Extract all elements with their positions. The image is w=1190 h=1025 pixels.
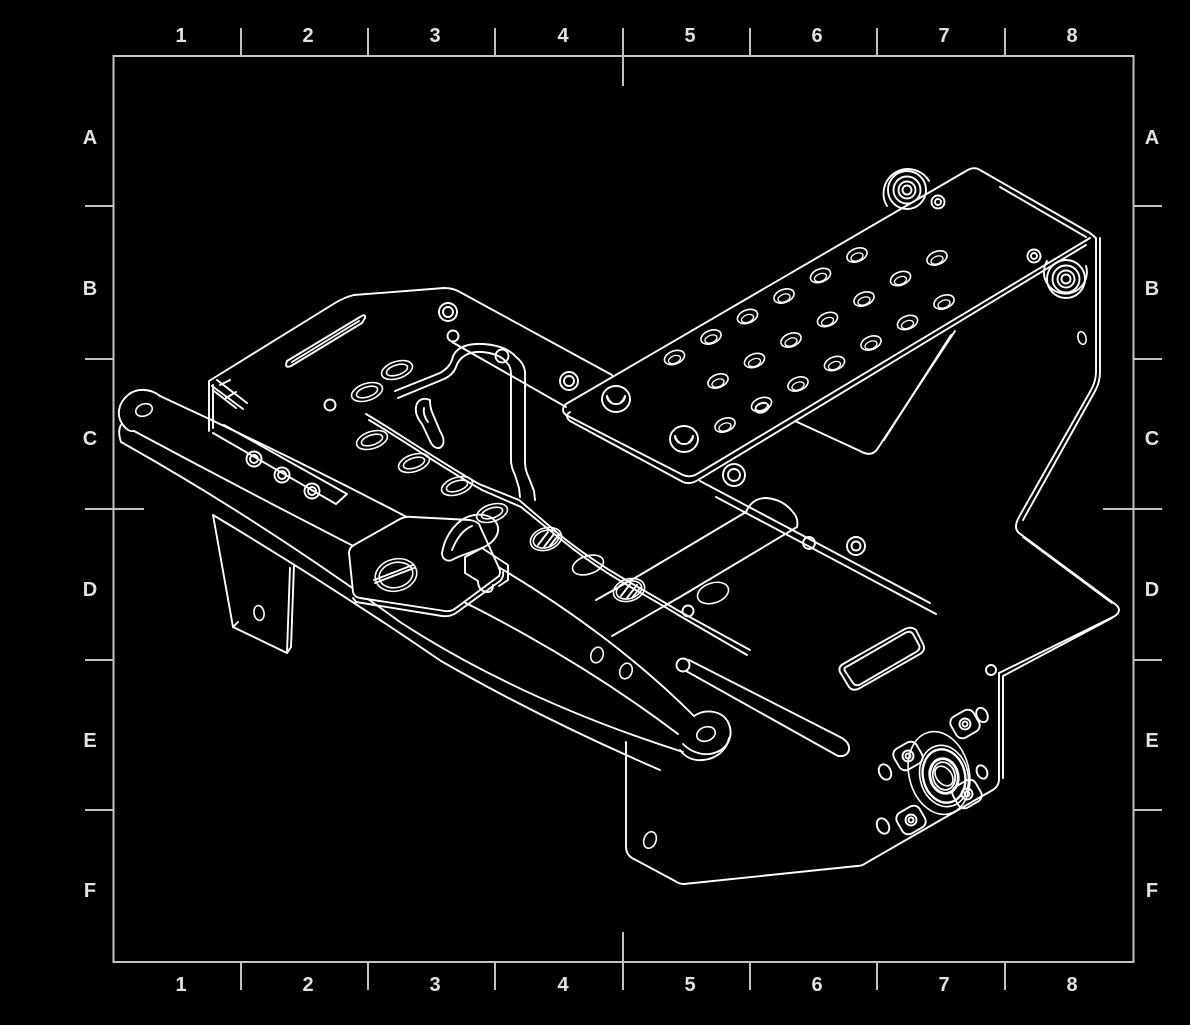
svg-text:F: F: [1146, 880, 1158, 902]
svg-text:C: C: [1145, 428, 1159, 450]
svg-text:E: E: [83, 730, 96, 752]
svg-text:7: 7: [938, 25, 949, 47]
svg-text:B: B: [1145, 278, 1159, 300]
svg-text:C: C: [83, 428, 97, 450]
svg-text:4: 4: [557, 974, 569, 996]
svg-text:A: A: [83, 127, 97, 149]
svg-text:A: A: [1145, 127, 1159, 149]
svg-text:2: 2: [302, 974, 313, 996]
svg-text:2: 2: [302, 25, 313, 47]
svg-text:8: 8: [1066, 25, 1077, 47]
svg-text:3: 3: [429, 974, 440, 996]
svg-text:3: 3: [429, 25, 440, 47]
svg-text:5: 5: [684, 974, 695, 996]
svg-text:D: D: [1145, 579, 1159, 601]
svg-text:6: 6: [811, 974, 822, 996]
svg-text:8: 8: [1066, 974, 1077, 996]
svg-text:B: B: [83, 278, 97, 300]
svg-text:F: F: [84, 880, 96, 902]
svg-text:5: 5: [684, 25, 695, 47]
svg-text:1: 1: [175, 974, 186, 996]
svg-text:6: 6: [811, 25, 822, 47]
svg-text:1: 1: [175, 25, 186, 47]
svg-text:E: E: [1145, 730, 1158, 752]
svg-text:7: 7: [938, 974, 949, 996]
svg-text:D: D: [83, 579, 97, 601]
svg-text:4: 4: [557, 25, 569, 47]
